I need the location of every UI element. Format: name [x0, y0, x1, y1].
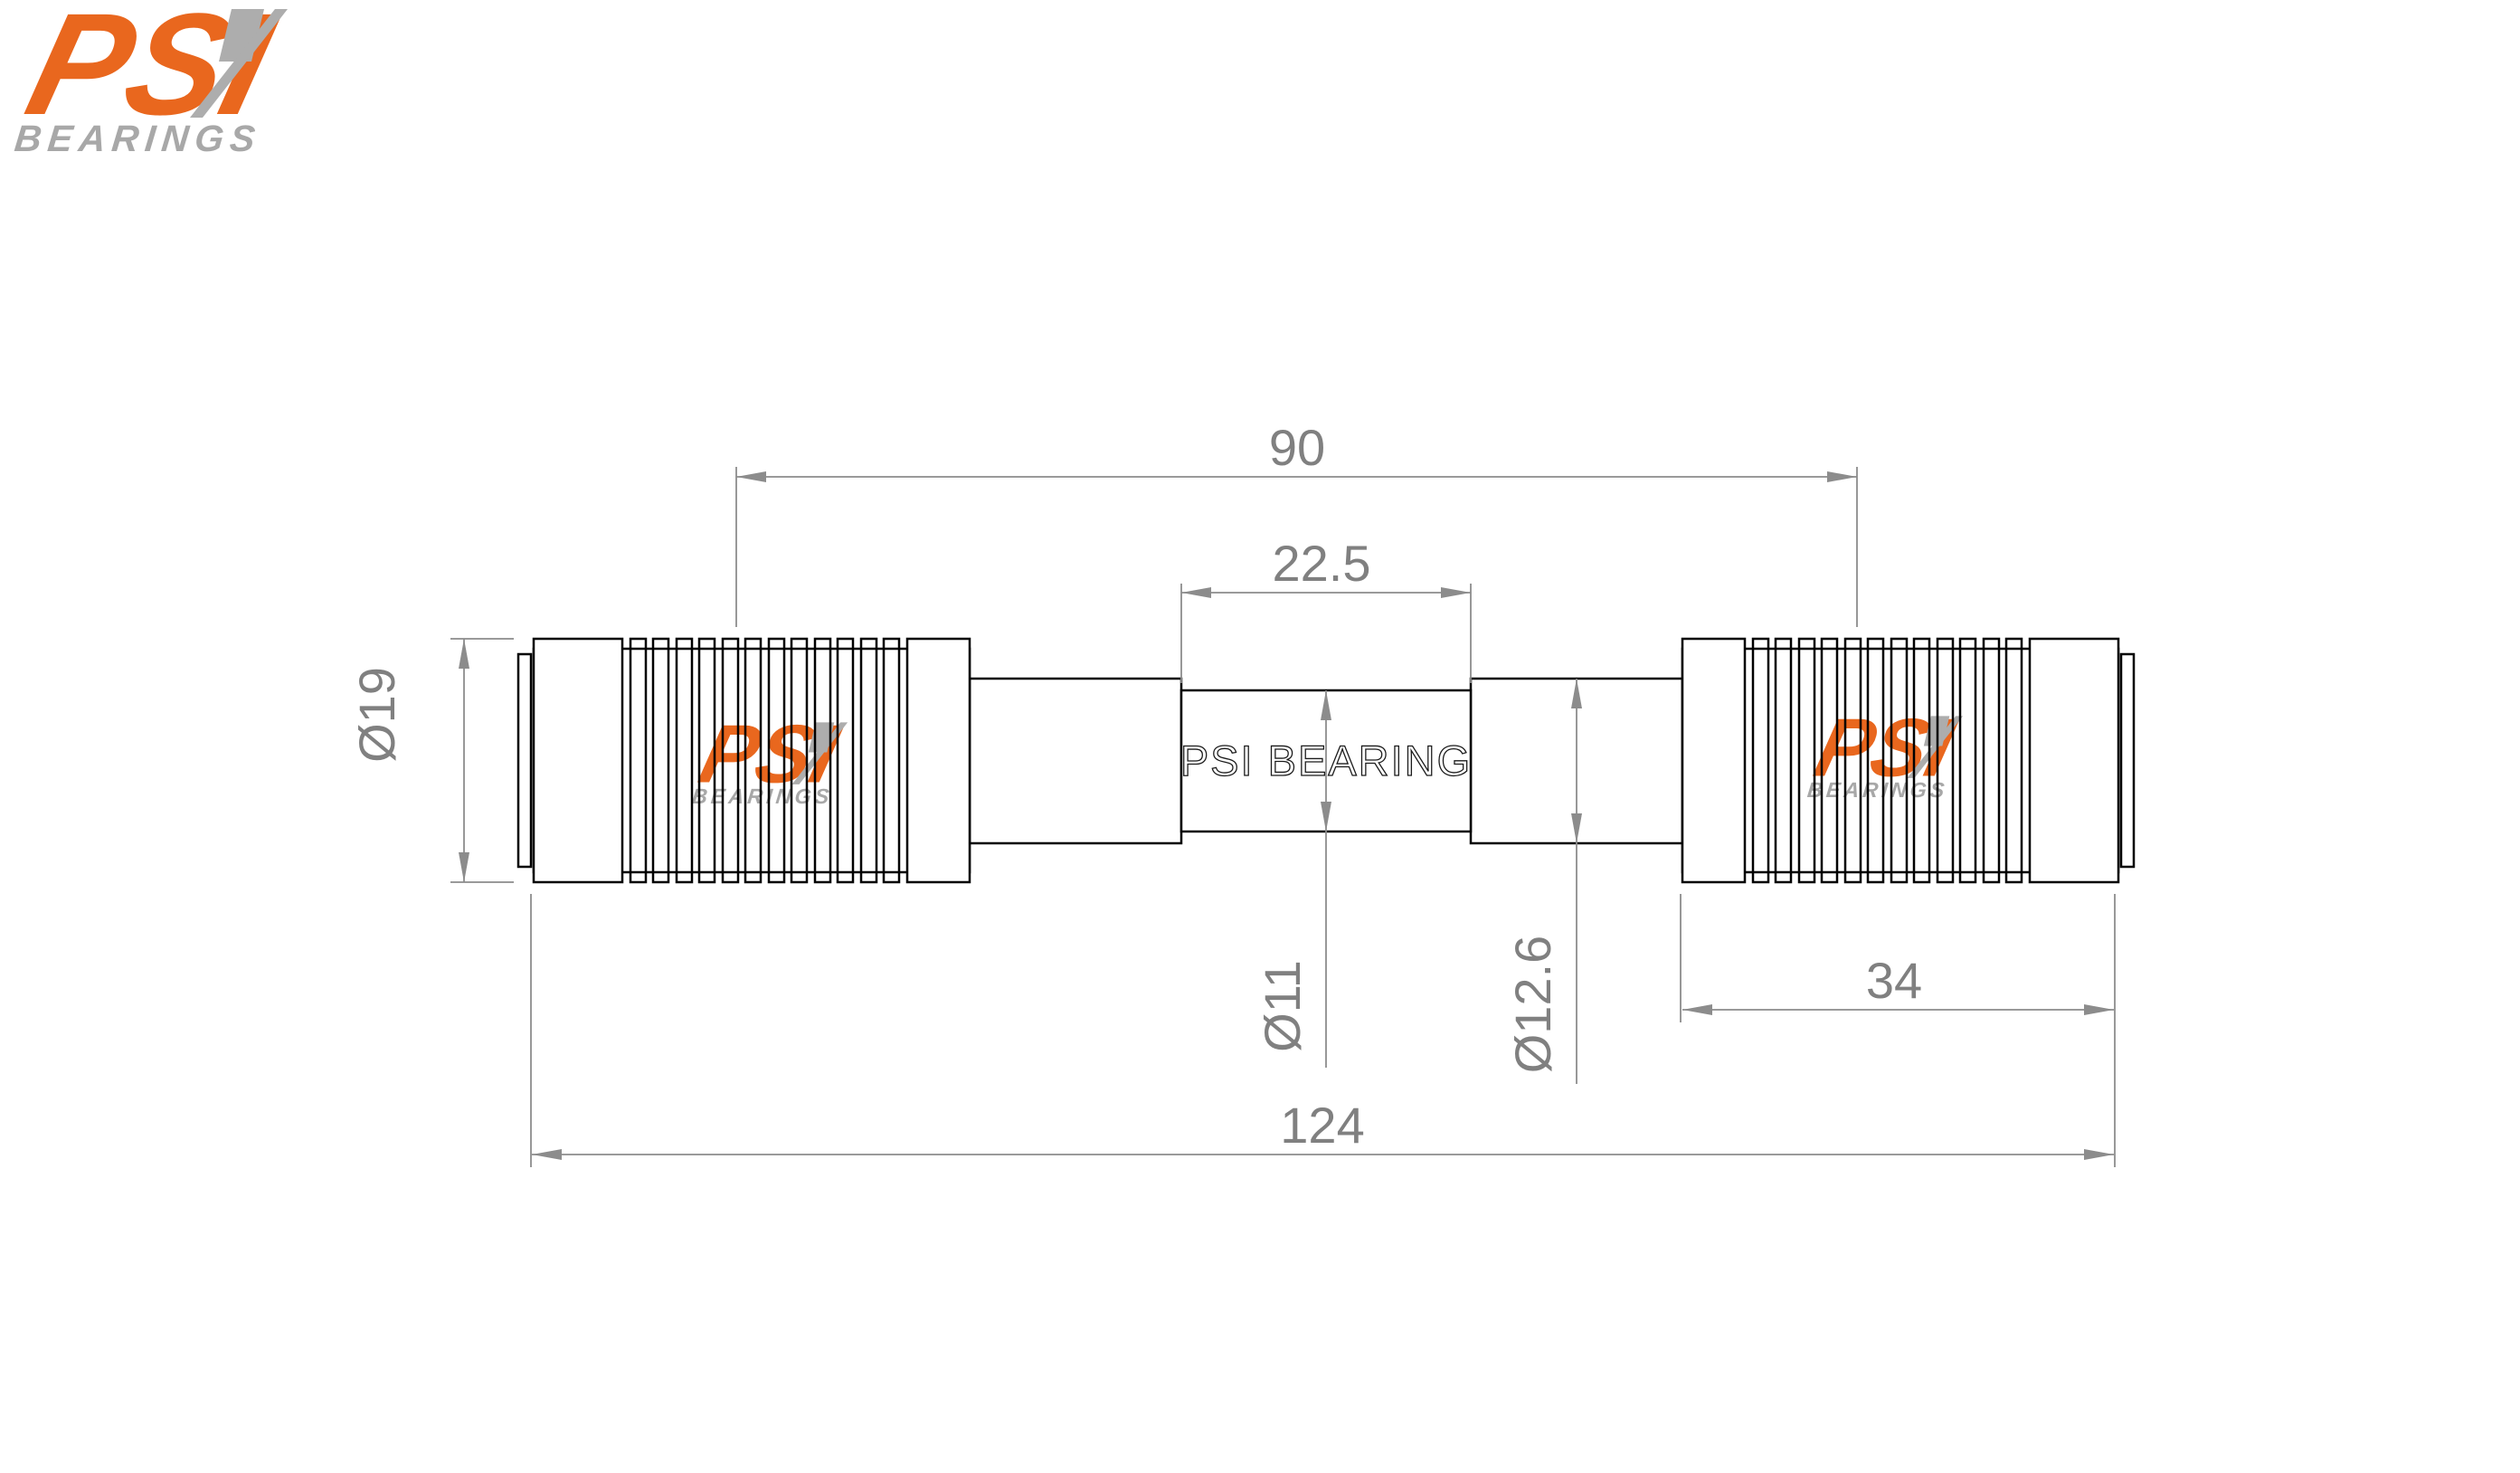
psi-logo: PSI BEARINGS: [1806, 701, 1965, 802]
logo-bearings-text: BEARINGS: [691, 784, 834, 808]
logo-bearings-text: BEARINGS: [1806, 778, 1949, 802]
drawing-sheet: PSI BEARINGS PSI BEARING PSI: [0, 0, 2520, 1473]
right-bearing: PSI BEARINGS: [1682, 639, 2134, 882]
dim-label-center-od: Ø11: [1254, 960, 1311, 1052]
psi-logo: PSI BEARINGS: [13, 0, 289, 159]
dim-label-bearing-length: 34: [1866, 952, 1922, 1009]
left-bearing: PSI BEARINGS: [518, 639, 970, 882]
dim-bearing-od: Ø19: [348, 639, 514, 882]
shaft-section-left: [970, 679, 1181, 843]
dim-label-overall-length: 124: [1280, 1097, 1364, 1154]
left-bearing-outer-block: [534, 639, 622, 882]
dim-label-bearing-od: Ø19: [348, 667, 405, 763]
right-bearing-outer-block: [2030, 639, 2118, 882]
logo-bearings-text: BEARINGS: [13, 118, 263, 159]
right-bearing-inner-block: [1682, 639, 1745, 882]
left-end-ring: [518, 654, 531, 867]
dim-label-shaft-od: Ø12.6: [1504, 936, 1561, 1074]
technical-drawing-canvas: PSI BEARINGS PSI BEARING PSI: [0, 0, 2520, 1473]
dim-bearing-length: 34: [1681, 894, 2114, 1022]
dim-label-bearing-span: 90: [1269, 419, 1325, 476]
dim-bearing-span: 90: [736, 419, 1857, 627]
right-end-ring: [2121, 654, 2134, 867]
dim-overall-length: 124: [531, 894, 2115, 1167]
dim-center-length: 22.5: [1181, 535, 1471, 683]
dim-label-center-length: 22.5: [1273, 535, 1371, 592]
left-bearing-inner-block: [907, 639, 970, 882]
